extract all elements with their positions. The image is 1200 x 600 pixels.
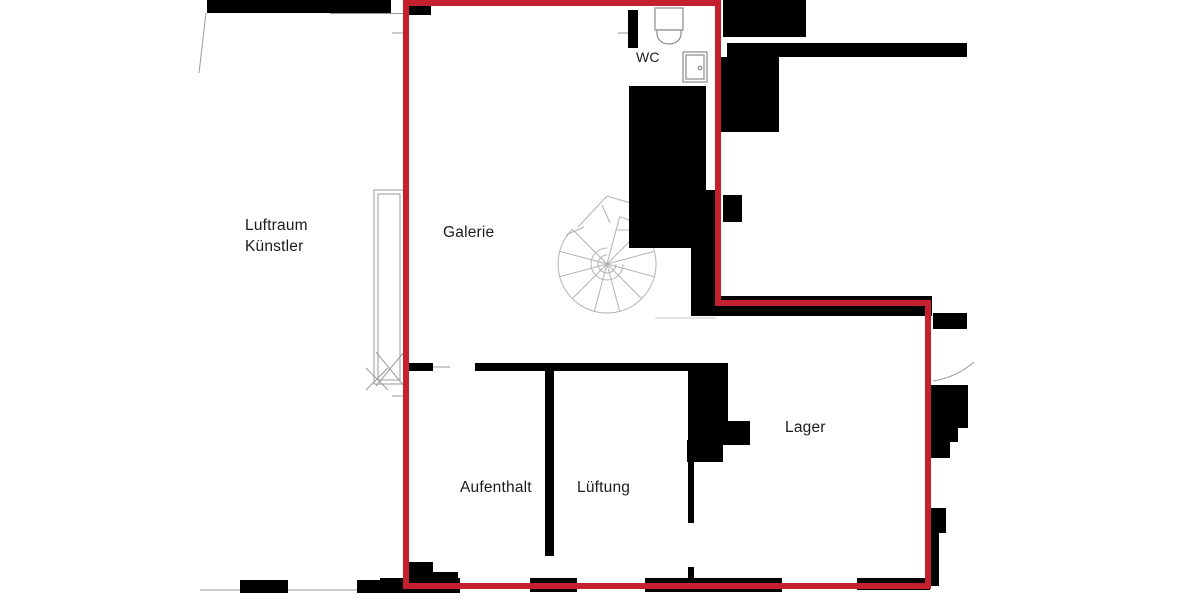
wall-segment xyxy=(628,10,638,48)
toilet-icon xyxy=(655,8,683,44)
wall-segment xyxy=(545,365,554,556)
stair-entry-line xyxy=(578,196,607,227)
sink-tap xyxy=(698,66,702,70)
toilet-tank xyxy=(655,8,683,30)
wall-segment xyxy=(688,462,694,523)
wall-segment xyxy=(931,385,968,428)
stair-tread xyxy=(607,217,620,264)
wall-segment xyxy=(207,0,391,13)
wall-segment xyxy=(728,421,750,445)
room-label-aufenthalt: Aufenthalt xyxy=(460,477,532,498)
room-label-lueftung: Lüftung xyxy=(577,477,630,498)
wc-fixtures xyxy=(655,8,707,82)
walls xyxy=(207,0,968,593)
stair-tread xyxy=(607,264,620,311)
floor-plan-drawing xyxy=(0,0,1200,600)
wall-segment xyxy=(433,572,458,584)
wall-segment xyxy=(240,580,288,593)
floor-plan-canvas: WC Luftraum Künstler Galerie Lager Aufen… xyxy=(0,0,1200,600)
wall-segment xyxy=(688,567,694,578)
room-label-luftraum-line2: Künstler xyxy=(245,236,308,257)
wall-segment xyxy=(688,363,728,445)
wall-segment xyxy=(723,195,742,222)
wall-segment xyxy=(723,0,806,37)
room-label-luftraum-line1: Luftraum xyxy=(245,215,308,236)
wall-segment xyxy=(933,313,967,329)
stair-tread xyxy=(607,264,642,299)
stair-tread xyxy=(560,264,607,277)
wall-segment xyxy=(931,508,946,533)
wall-segment xyxy=(357,580,403,593)
stair-tread xyxy=(607,264,654,277)
wall-segment xyxy=(406,562,433,580)
gallery-railing xyxy=(366,190,404,390)
room-label-wc: WC xyxy=(636,47,660,68)
room-label-luftraum: Luftraum Künstler xyxy=(245,215,308,257)
sink-icon xyxy=(683,52,707,82)
toilet-bowl xyxy=(657,30,681,44)
wall-segment xyxy=(719,57,779,132)
room-label-lager: Lager xyxy=(785,417,826,438)
stair-tread xyxy=(572,264,607,299)
stair-tread xyxy=(560,251,607,264)
door-swing-arc xyxy=(933,362,974,381)
wall-segment xyxy=(931,533,939,586)
wall-segment xyxy=(931,428,958,442)
railing-inner xyxy=(378,194,400,380)
wall-segment xyxy=(727,43,967,57)
stair-tick xyxy=(566,227,584,235)
stair-tread xyxy=(594,264,607,311)
stair-tread xyxy=(572,229,607,264)
room-label-galerie: Galerie xyxy=(443,222,494,243)
wall-segment xyxy=(931,442,950,458)
wall-segment xyxy=(687,440,723,462)
stair-tick xyxy=(602,205,610,223)
wall-segment xyxy=(408,363,433,371)
wall-hairline xyxy=(199,13,206,73)
stair-tread xyxy=(607,251,654,264)
wall-segment xyxy=(475,363,688,371)
wall-segment xyxy=(408,6,431,15)
